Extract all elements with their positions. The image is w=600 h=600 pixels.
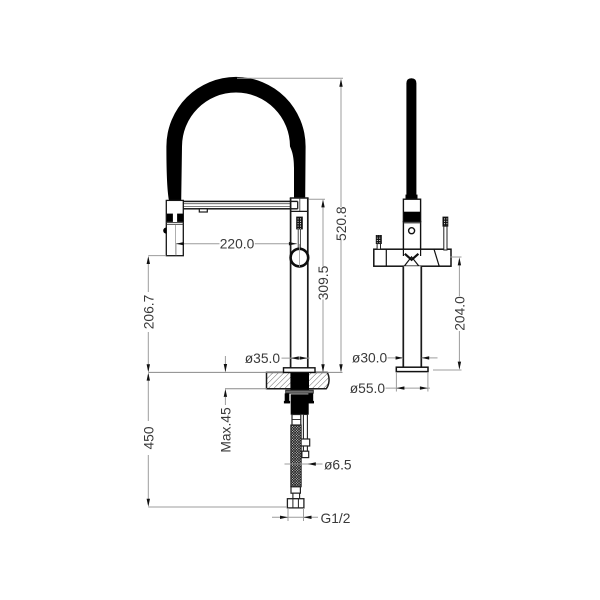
svg-text:ø6.5: ø6.5: [324, 457, 352, 472]
svg-text:ø55.0: ø55.0: [350, 381, 386, 396]
svg-text:450: 450: [141, 426, 156, 449]
svg-text:ø35.0: ø35.0: [245, 351, 281, 366]
svg-text:G1/2: G1/2: [321, 511, 351, 526]
svg-text:220.0: 220.0: [220, 237, 255, 252]
svg-text:206.7: 206.7: [141, 295, 156, 330]
svg-text:309.5: 309.5: [316, 265, 331, 300]
svg-text:Max.45: Max.45: [218, 407, 233, 453]
svg-text:204.0: 204.0: [452, 296, 467, 331]
svg-text:ø30.0: ø30.0: [352, 351, 388, 366]
svg-text:520.8: 520.8: [334, 206, 349, 241]
